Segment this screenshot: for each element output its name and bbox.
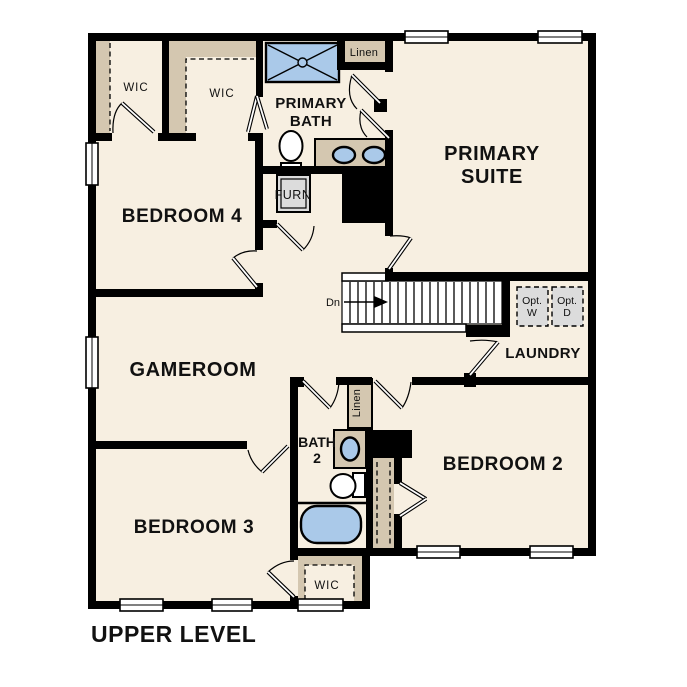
label-bedroom-2: BEDROOM 2 — [443, 454, 563, 475]
label-primary-bath-1: PRIMARY — [275, 95, 346, 112]
label-linen-upper: Linen — [350, 47, 378, 59]
label-bath-2-1: BATH — [298, 434, 336, 450]
window — [298, 599, 343, 611]
plan-title: UPPER LEVEL — [91, 621, 256, 647]
label-laundry: LAUNDRY — [505, 345, 581, 362]
label-wic-top-left: WIC — [123, 82, 148, 94]
double-vanity-icon — [315, 139, 386, 170]
chase-lower — [373, 430, 412, 458]
window — [405, 31, 448, 43]
window — [417, 546, 460, 558]
window — [212, 599, 252, 611]
label-furnace: FURN — [275, 188, 312, 202]
bathtub-icon — [298, 503, 366, 543]
window — [120, 599, 163, 611]
window — [86, 337, 98, 388]
label-stairs-dn: Dn — [326, 297, 340, 309]
label-wic-bedroom-3: WIC — [314, 580, 339, 592]
window — [86, 143, 98, 185]
wic-top-left-shelf — [96, 41, 110, 133]
label-gameroom: GAMEROOM — [129, 359, 256, 381]
label-opt-washer-2: W — [527, 307, 537, 319]
label-opt-dryer-2: D — [563, 307, 571, 319]
window — [530, 546, 573, 558]
label-primary-suite-2: SUITE — [461, 166, 523, 188]
toilet-2-icon — [331, 473, 366, 498]
wic-top-right-shelf-left — [169, 41, 186, 133]
floor-plan-upper-level: WIC WIC Linen PRIMARY BATH PRIMARY SUITE… — [0, 0, 687, 687]
label-bedroom-4: BEDROOM 4 — [122, 206, 242, 227]
chase-upper — [342, 170, 393, 223]
label-opt-dryer-1: Opt. — [557, 295, 577, 307]
label-opt-washer-1: Opt. — [522, 295, 542, 307]
sink-icon — [334, 430, 366, 468]
label-bath-2-2: 2 — [313, 450, 321, 466]
stairs — [342, 273, 502, 332]
stair-rail-top — [342, 273, 388, 281]
window — [538, 31, 582, 43]
label-linen-lower: Linen — [351, 389, 363, 417]
bedroom2-closet — [373, 458, 394, 548]
label-bedroom-3: BEDROOM 3 — [134, 517, 254, 538]
stair-rail-bottom — [342, 324, 466, 332]
label-primary-suite-1: PRIMARY — [444, 143, 540, 165]
label-wic-top-right: WIC — [209, 88, 234, 100]
label-primary-bath-2: BATH — [290, 113, 332, 130]
shower-icon — [266, 43, 339, 82]
